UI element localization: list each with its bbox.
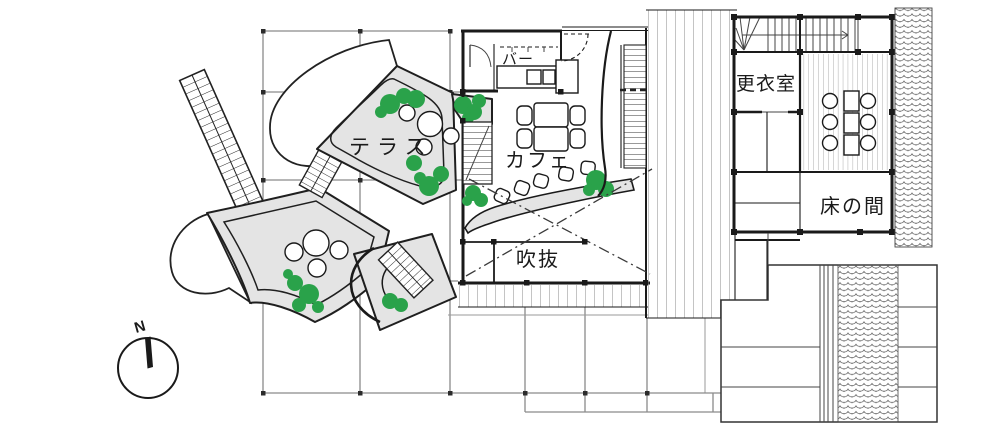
- entrance-door-swing: [561, 34, 589, 61]
- floor-plan-canvas: テラス: [0, 0, 1000, 439]
- north-label: N: [132, 318, 147, 337]
- tile-roof-strip: [895, 8, 932, 247]
- tree: [462, 185, 488, 207]
- void-label: 吹抜: [516, 248, 560, 271]
- cafe-stair: [620, 45, 646, 168]
- ramp-stair: [180, 70, 264, 215]
- toilet-door: [470, 45, 491, 67]
- tatami-seating: [823, 91, 876, 155]
- cafe-building: バー カフェ: [458, 27, 652, 318]
- cafe-table-group: [517, 103, 585, 151]
- north-compass: N: [118, 318, 178, 398]
- bar-label: バー: [502, 51, 534, 68]
- terrace-label: テラス: [349, 136, 433, 159]
- deck-strip: [646, 10, 737, 318]
- changing-room-label: 更衣室: [736, 73, 796, 95]
- bar-room: バー: [461, 30, 578, 93]
- alcove-label: 床の間: [820, 195, 886, 218]
- lower-deck: [458, 284, 648, 307]
- entry-stair: [463, 122, 492, 184]
- roof-block: [721, 233, 937, 422]
- roof-ridge-tiles: [838, 265, 898, 422]
- entry-landing: [452, 94, 492, 124]
- floor-plan-drawing: テラス: [0, 0, 1000, 439]
- annex-building: 更衣室 床の間: [731, 14, 895, 300]
